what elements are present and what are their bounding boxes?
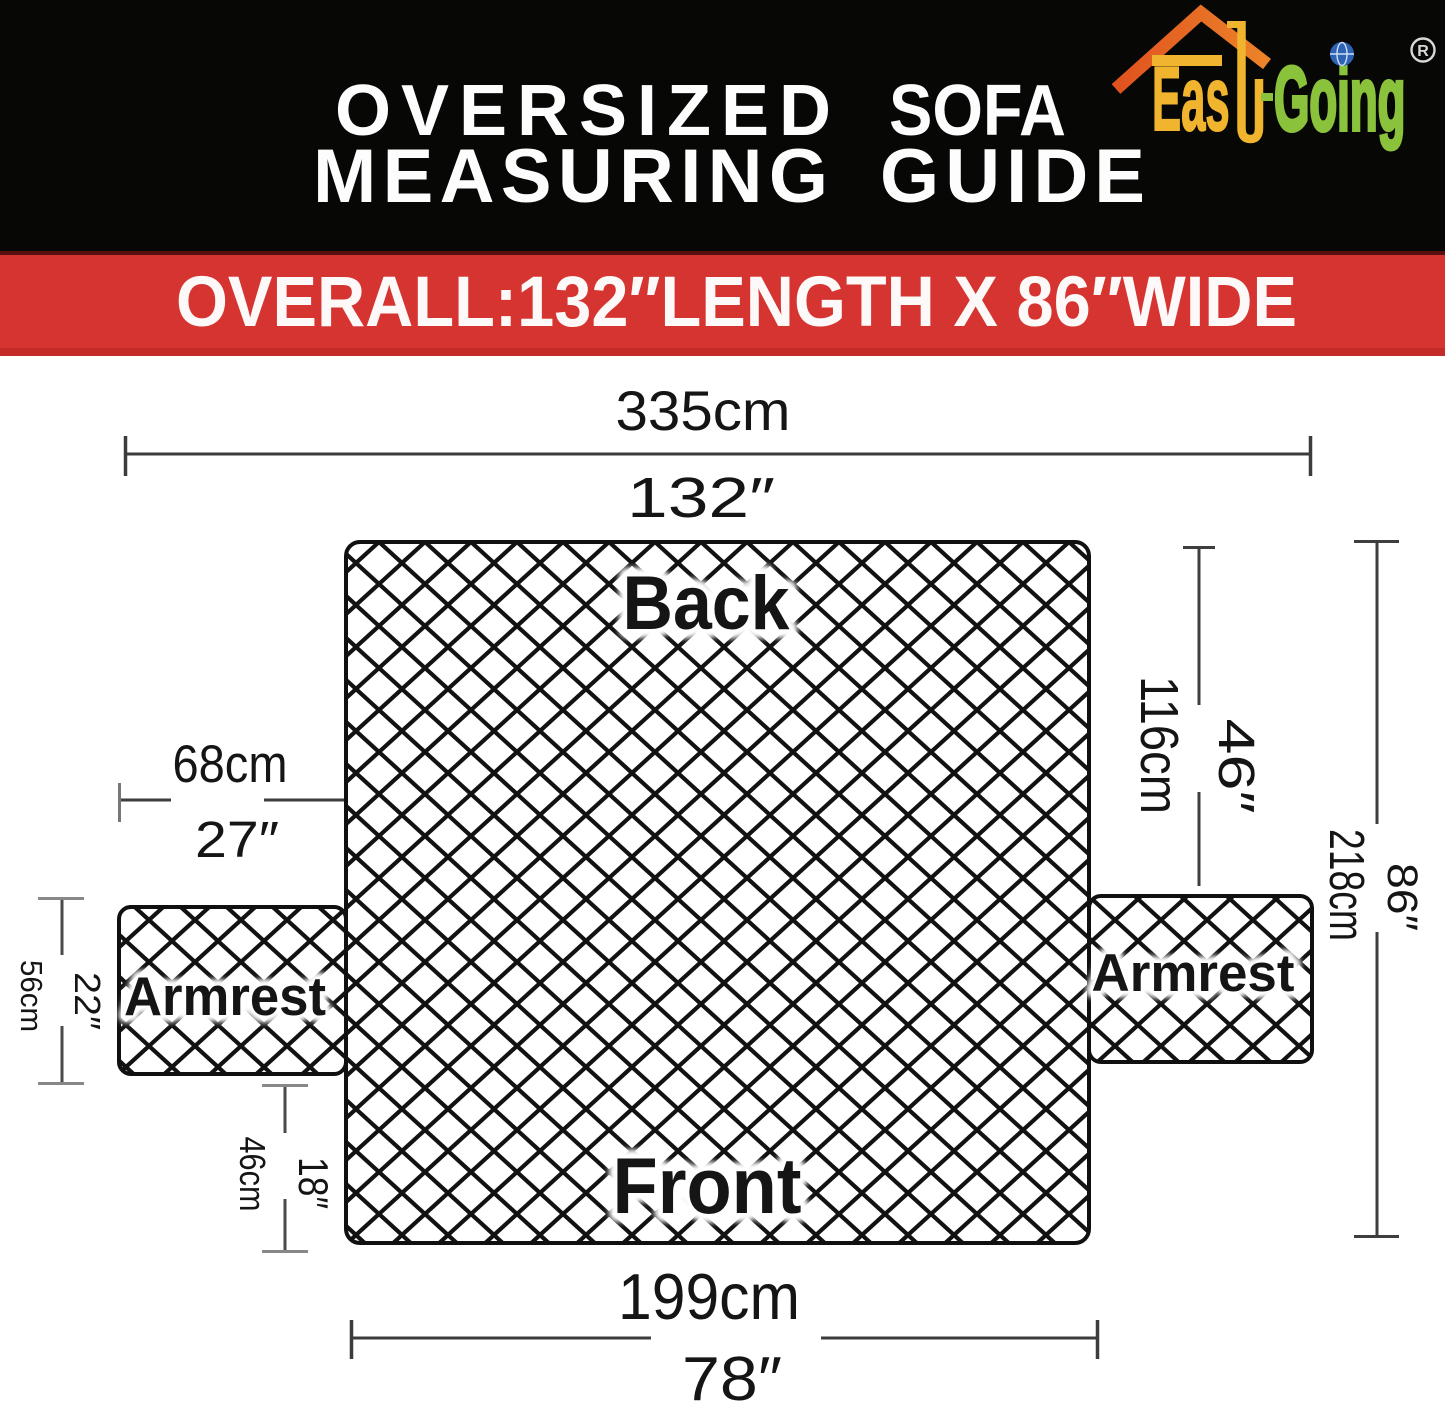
svg-text:Armrest: Armrest (124, 965, 326, 1027)
svg-text:18″: 18″ (290, 1157, 337, 1209)
svg-text:68cm: 68cm (173, 735, 288, 794)
svg-text:46cm: 46cm (232, 1137, 273, 1212)
svg-text:132″: 132″ (627, 466, 775, 530)
svg-text:218cm: 218cm (1319, 829, 1373, 941)
svg-text:OVERALL:132″LENGTH X 86″WIDE: OVERALL:132″LENGTH X 86″WIDE (176, 263, 1297, 342)
svg-text:199cm: 199cm (618, 1260, 800, 1333)
svg-text:MEASURING: MEASURING (313, 134, 828, 219)
svg-text:R: R (1417, 43, 1429, 60)
svg-text:116cm: 116cm (1129, 676, 1189, 814)
svg-text:22″: 22″ (67, 972, 108, 1030)
svg-text:Front: Front (613, 1141, 802, 1230)
svg-text:46″: 46″ (1208, 719, 1265, 814)
svg-text:Back: Back (623, 561, 791, 646)
svg-text:27″: 27″ (195, 811, 279, 868)
svg-text:86″: 86″ (1378, 863, 1426, 931)
svg-text:GUIDE: GUIDE (880, 134, 1145, 219)
svg-text:56cm: 56cm (14, 960, 49, 1032)
svg-text:Armrest: Armrest (1092, 944, 1295, 1003)
svg-text:78″: 78″ (682, 1345, 782, 1408)
svg-text:335cm: 335cm (616, 379, 791, 442)
